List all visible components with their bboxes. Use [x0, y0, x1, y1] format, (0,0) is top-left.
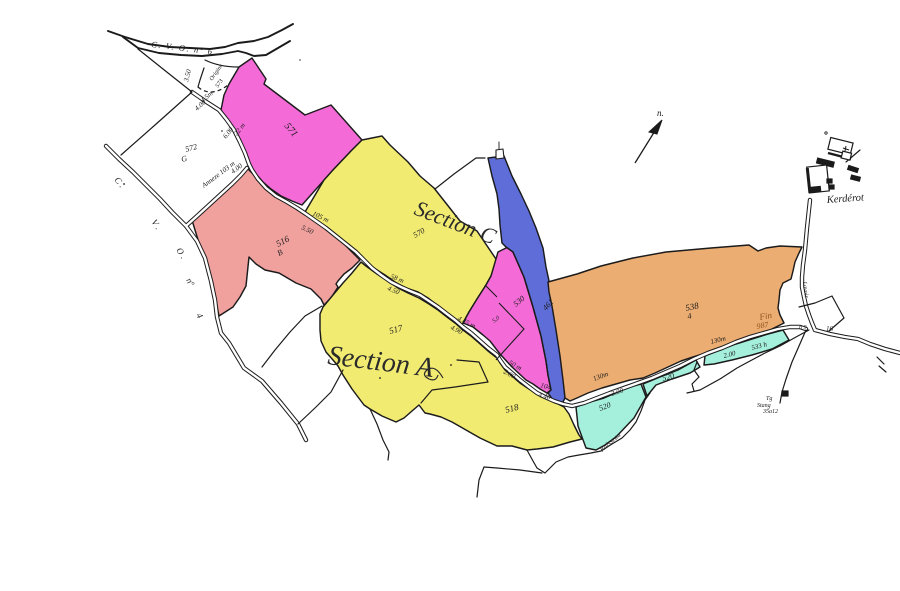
svg-text:35a12: 35a12 — [762, 409, 778, 415]
svg-text:n.: n. — [657, 108, 664, 118]
svg-text:Tg: Tg — [766, 396, 772, 402]
svg-text:16: 16 — [826, 325, 834, 333]
svg-text:n 9: n 9 — [799, 325, 807, 331]
